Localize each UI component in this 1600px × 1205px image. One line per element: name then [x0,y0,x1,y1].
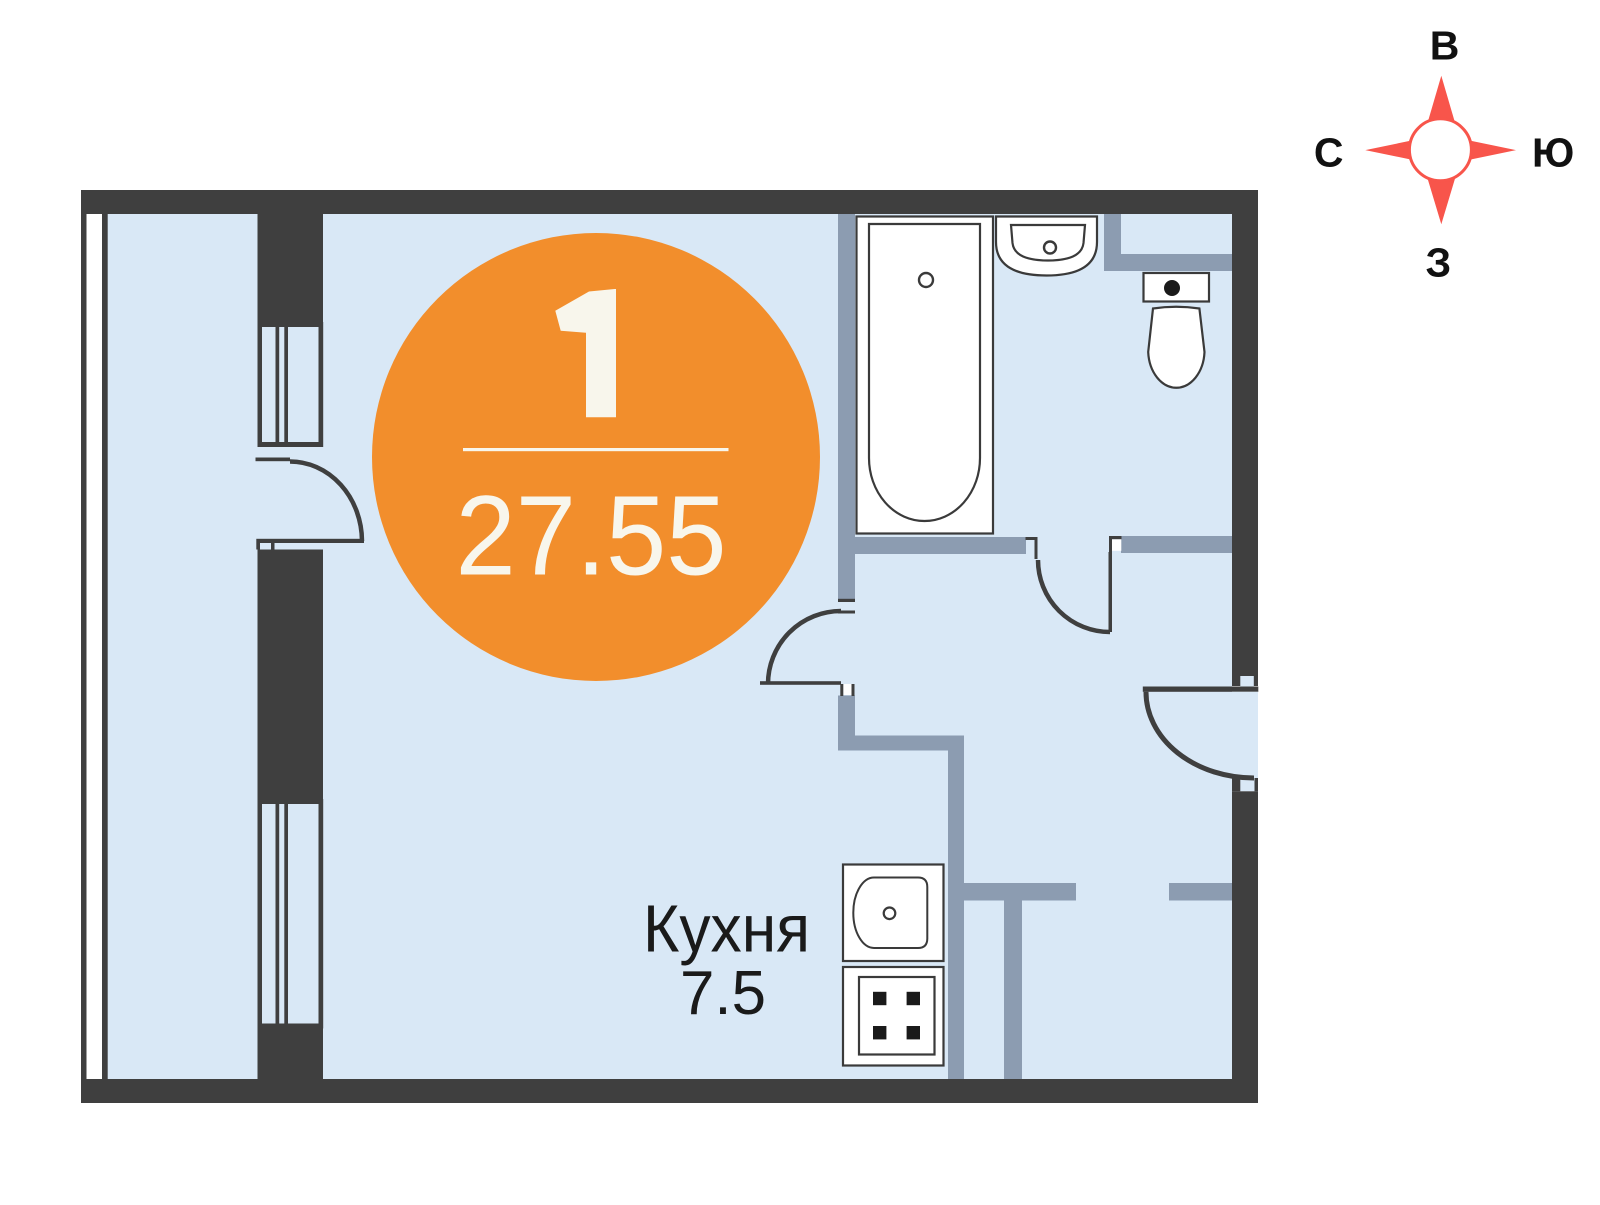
svg-text:Ю: Ю [1532,129,1574,175]
svg-text:З: З [1426,240,1452,286]
svg-text:7.5: 7.5 [680,959,766,1028]
svg-text:С: С [1314,129,1344,175]
svg-text:Кухня: Кухня [643,892,810,967]
svg-text:В: В [1430,22,1460,68]
svg-text:27.55: 27.55 [456,473,727,599]
